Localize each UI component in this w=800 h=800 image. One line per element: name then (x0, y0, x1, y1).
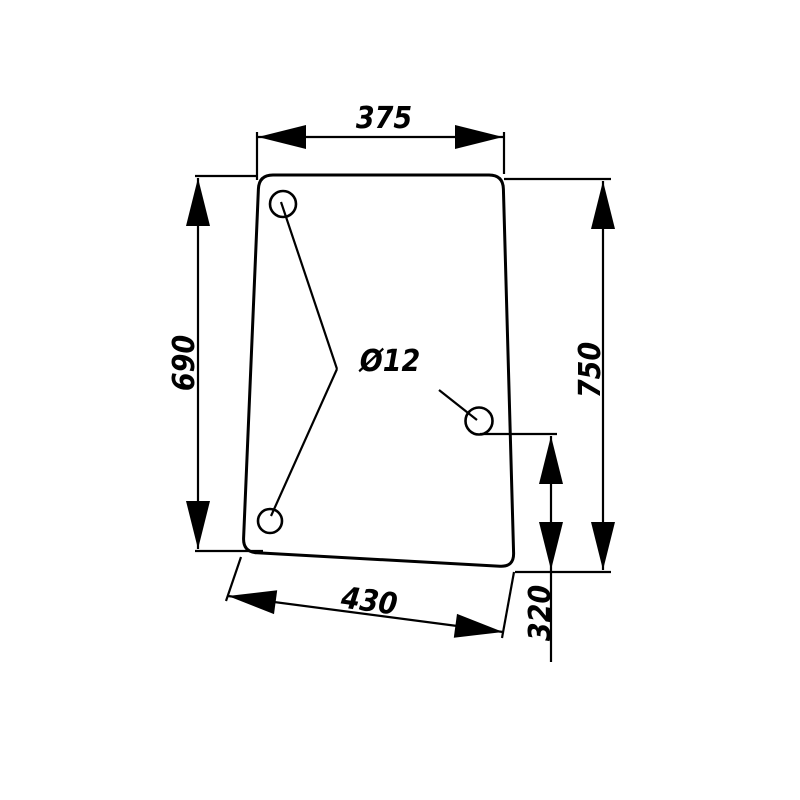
hole-diameter-label: Ø12 (358, 344, 420, 379)
glass-panel-drawing: 375 690 750 320 430 Ø12 (0, 0, 800, 800)
dim-left-height-label: 690 (167, 335, 202, 391)
dim-750-arrow-top (591, 181, 615, 229)
dim-430-arrow-left (228, 590, 277, 614)
dim-320-arrow-bottom (539, 522, 563, 570)
dim-430-ext-left (226, 557, 241, 601)
leader-top-hole (281, 202, 337, 369)
hole-middle-right (466, 408, 493, 435)
dim-430-ext-right (502, 572, 514, 638)
leader-bottom-hole (271, 369, 337, 516)
hole-bottom-left (258, 509, 282, 533)
dim-right-height-label: 750 (573, 342, 608, 398)
dim-320-arrow-top (539, 436, 563, 484)
dim-430-arrow-right (454, 614, 503, 638)
dim-750-arrow-bottom (591, 522, 615, 570)
dim-hole-offset-label: 320 (523, 585, 558, 641)
leader-right-hole (439, 390, 477, 420)
hole-top-left (270, 191, 296, 217)
dim-375-arrow-right (455, 125, 503, 149)
dim-bottom-width-label: 430 (338, 580, 399, 622)
technical-drawing-canvas: 375 690 750 320 430 Ø12 (0, 0, 800, 800)
dim-690-arrow-top (186, 178, 210, 226)
dim-375-arrow-left (258, 125, 306, 149)
dim-690-arrow-bottom (186, 501, 210, 549)
dim-top-width-label: 375 (356, 101, 412, 136)
